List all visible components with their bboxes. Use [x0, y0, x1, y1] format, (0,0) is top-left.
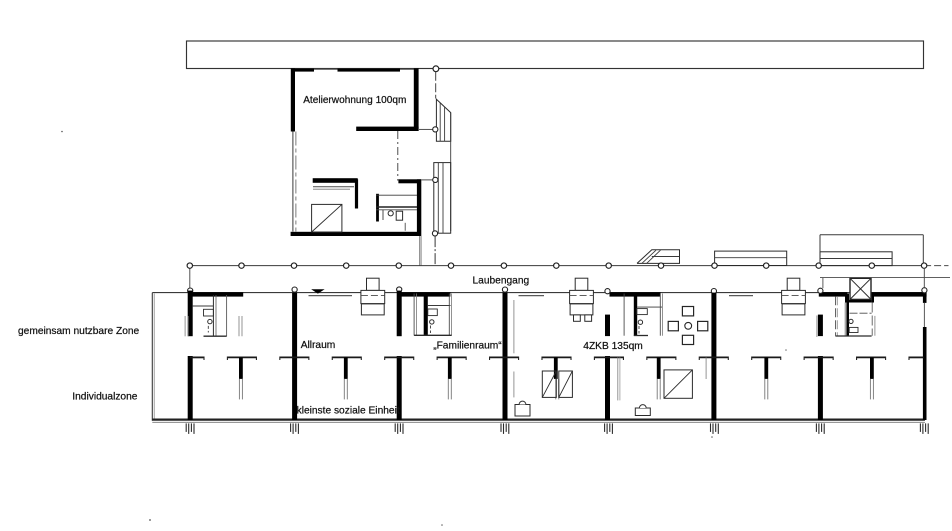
- svg-text:gemeinsam nutzbare Zone: gemeinsam nutzbare Zone: [18, 326, 140, 337]
- svg-text:Atelierwohnung 100qm: Atelierwohnung 100qm: [303, 95, 406, 106]
- svg-text:kleinste soziale Einheit: kleinste soziale Einheit: [297, 406, 400, 417]
- svg-text:„Familienraum“: „Familienraum“: [433, 340, 502, 351]
- svg-text:Laubengang: Laubengang: [473, 276, 530, 287]
- svg-text:Individualzone: Individualzone: [72, 392, 137, 403]
- svg-text:Allraum: Allraum: [301, 340, 336, 351]
- svg-text:4ZKB 135qm: 4ZKB 135qm: [583, 341, 642, 352]
